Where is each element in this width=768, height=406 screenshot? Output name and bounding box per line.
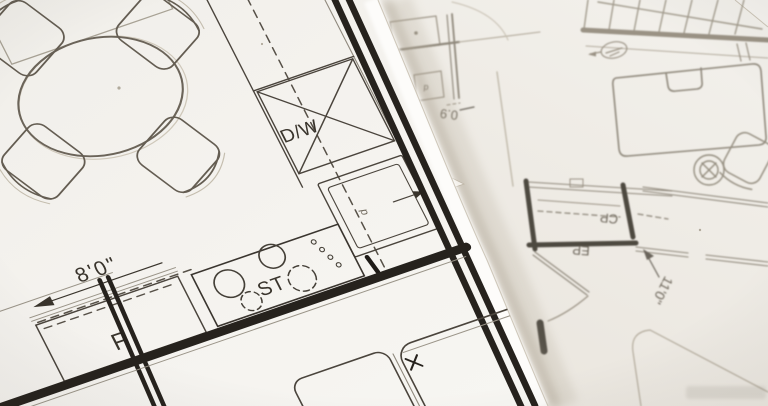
vignette (0, 0, 768, 406)
floorplan-scene: CP EP 11'0" d 0.9 (0, 0, 768, 406)
blueprint-photo: CP EP 11'0" d 0.9 (0, 0, 768, 406)
